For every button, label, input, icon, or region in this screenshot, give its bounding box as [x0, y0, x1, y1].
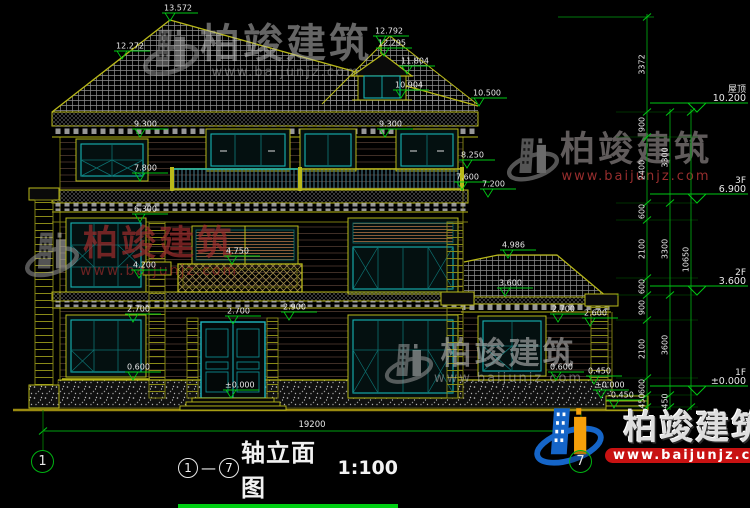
brand-logo-footer: 柏竣建筑 www.baijunjz.com	[533, 401, 750, 473]
brand-logo-icon	[142, 24, 200, 82]
watermark-url: www.baijunjz.com	[211, 66, 360, 79]
brand-url: www.baijunjz.com	[605, 448, 750, 463]
drawing-title: 1 — 7 轴立面图 1:100	[178, 433, 398, 508]
brand-logo-icon	[24, 227, 80, 283]
watermark-brand: 柏竣建筑	[83, 227, 235, 262]
brand-name: 柏竣建筑	[623, 411, 750, 445]
title-dash: —	[201, 459, 216, 477]
entrance-door	[187, 318, 278, 398]
watermark-brand: 柏竣建筑	[560, 133, 712, 168]
watermark-brand: 柏竣建筑	[200, 24, 372, 64]
watermark-right-upper: 柏竣建筑 www.baijunjz.com	[506, 133, 712, 187]
title-axis-start: 1	[178, 458, 198, 478]
brand-logo-icon	[384, 339, 434, 389]
title-scale: 1:100	[338, 457, 398, 479]
title-axis-end: 7	[219, 458, 239, 478]
floor-cornice-3f	[52, 190, 468, 222]
brand-logo-icon	[506, 133, 560, 187]
axis-bubble-7: 7	[569, 450, 592, 473]
watermark-mid-left: 柏竣建筑 www.baijunjz.com	[24, 227, 238, 283]
watermark-brand: 柏竣建筑	[441, 339, 577, 370]
axis-bubble-1: 1	[31, 450, 54, 473]
floor-cornice-2f	[52, 292, 470, 308]
title-underline	[178, 504, 398, 508]
title-name: 轴立面图	[241, 433, 330, 503]
watermark-mid-right: 柏竣建筑 www.baijunjz.com	[384, 339, 583, 389]
watermark-url: www.baijunjz.com	[80, 264, 238, 278]
watermark-url: www.baijunjz.com	[434, 372, 583, 385]
watermark-top: 柏竣建筑 www.baijunjz.com	[142, 24, 372, 82]
axis-number: 7	[576, 454, 584, 469]
balcony-railing	[170, 167, 464, 191]
axis-number: 1	[38, 454, 46, 469]
entrance-steps	[180, 398, 286, 410]
watermark-url: www.baijunjz.com	[561, 170, 710, 183]
